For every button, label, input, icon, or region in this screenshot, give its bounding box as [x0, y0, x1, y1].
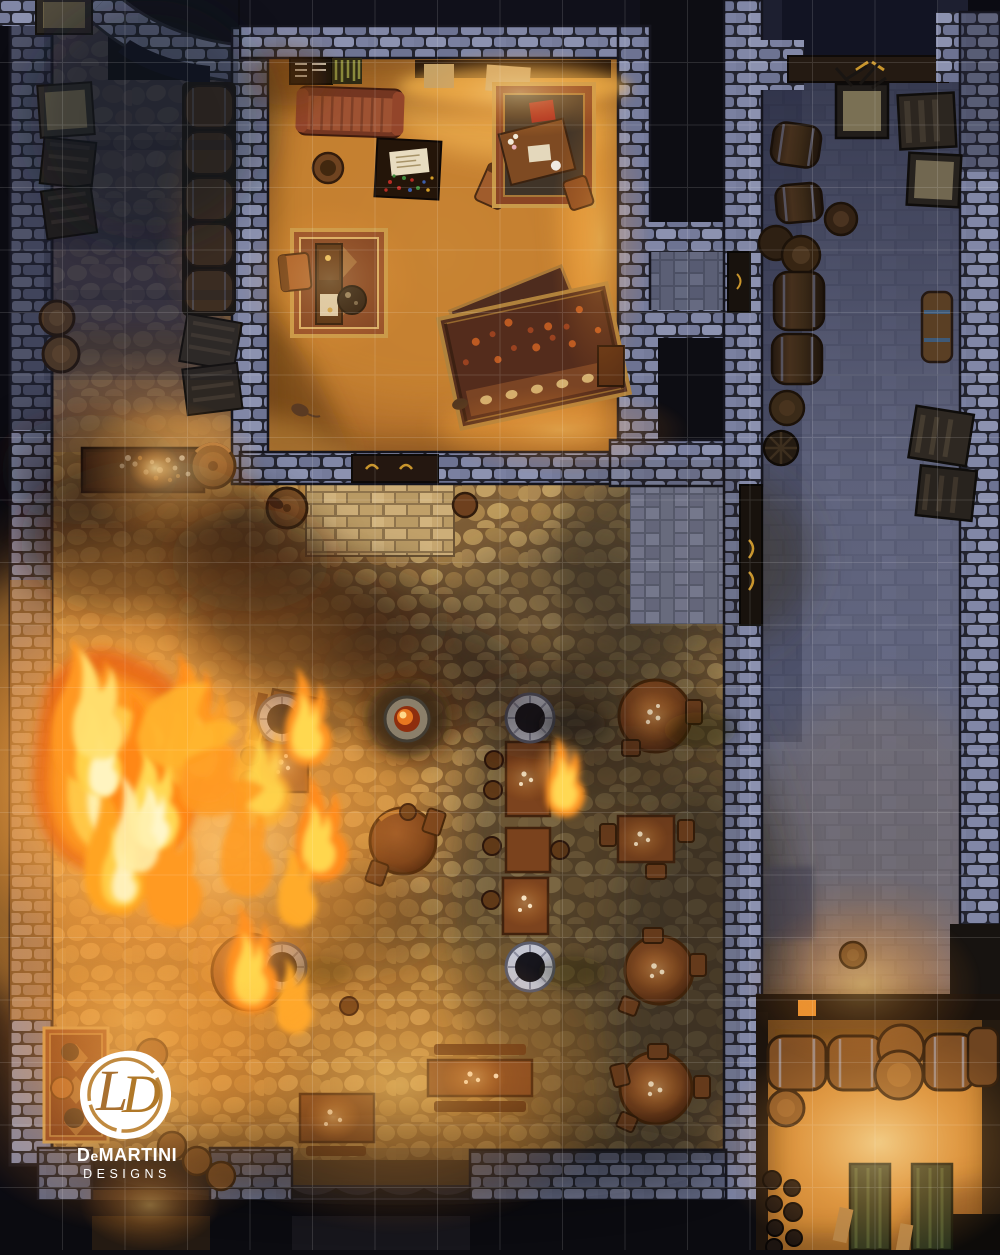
svg-text:DESIGNS: DESIGNS [83, 1167, 171, 1181]
svg-text:DeMARTINI: DeMARTINI [77, 1145, 177, 1165]
svg-text:D: D [121, 1064, 161, 1124]
